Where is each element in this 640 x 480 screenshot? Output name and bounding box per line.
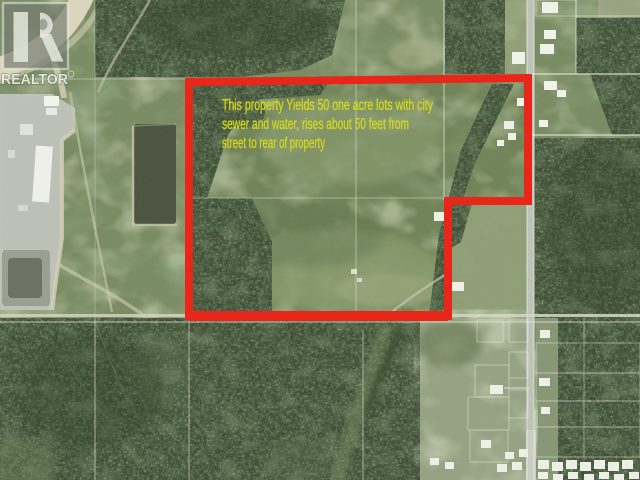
svg-text:This property Yields 50 one ac: This property Yields 50 one acre lots wi… <box>222 97 433 114</box>
svg-text:sewer and water, rises about 5: sewer and water, rises about 50 feet fro… <box>222 116 409 133</box>
svg-text:street to rear of property: street to rear of property <box>222 135 325 152</box>
svg-text:REALTOR: REALTOR <box>1 71 68 88</box>
